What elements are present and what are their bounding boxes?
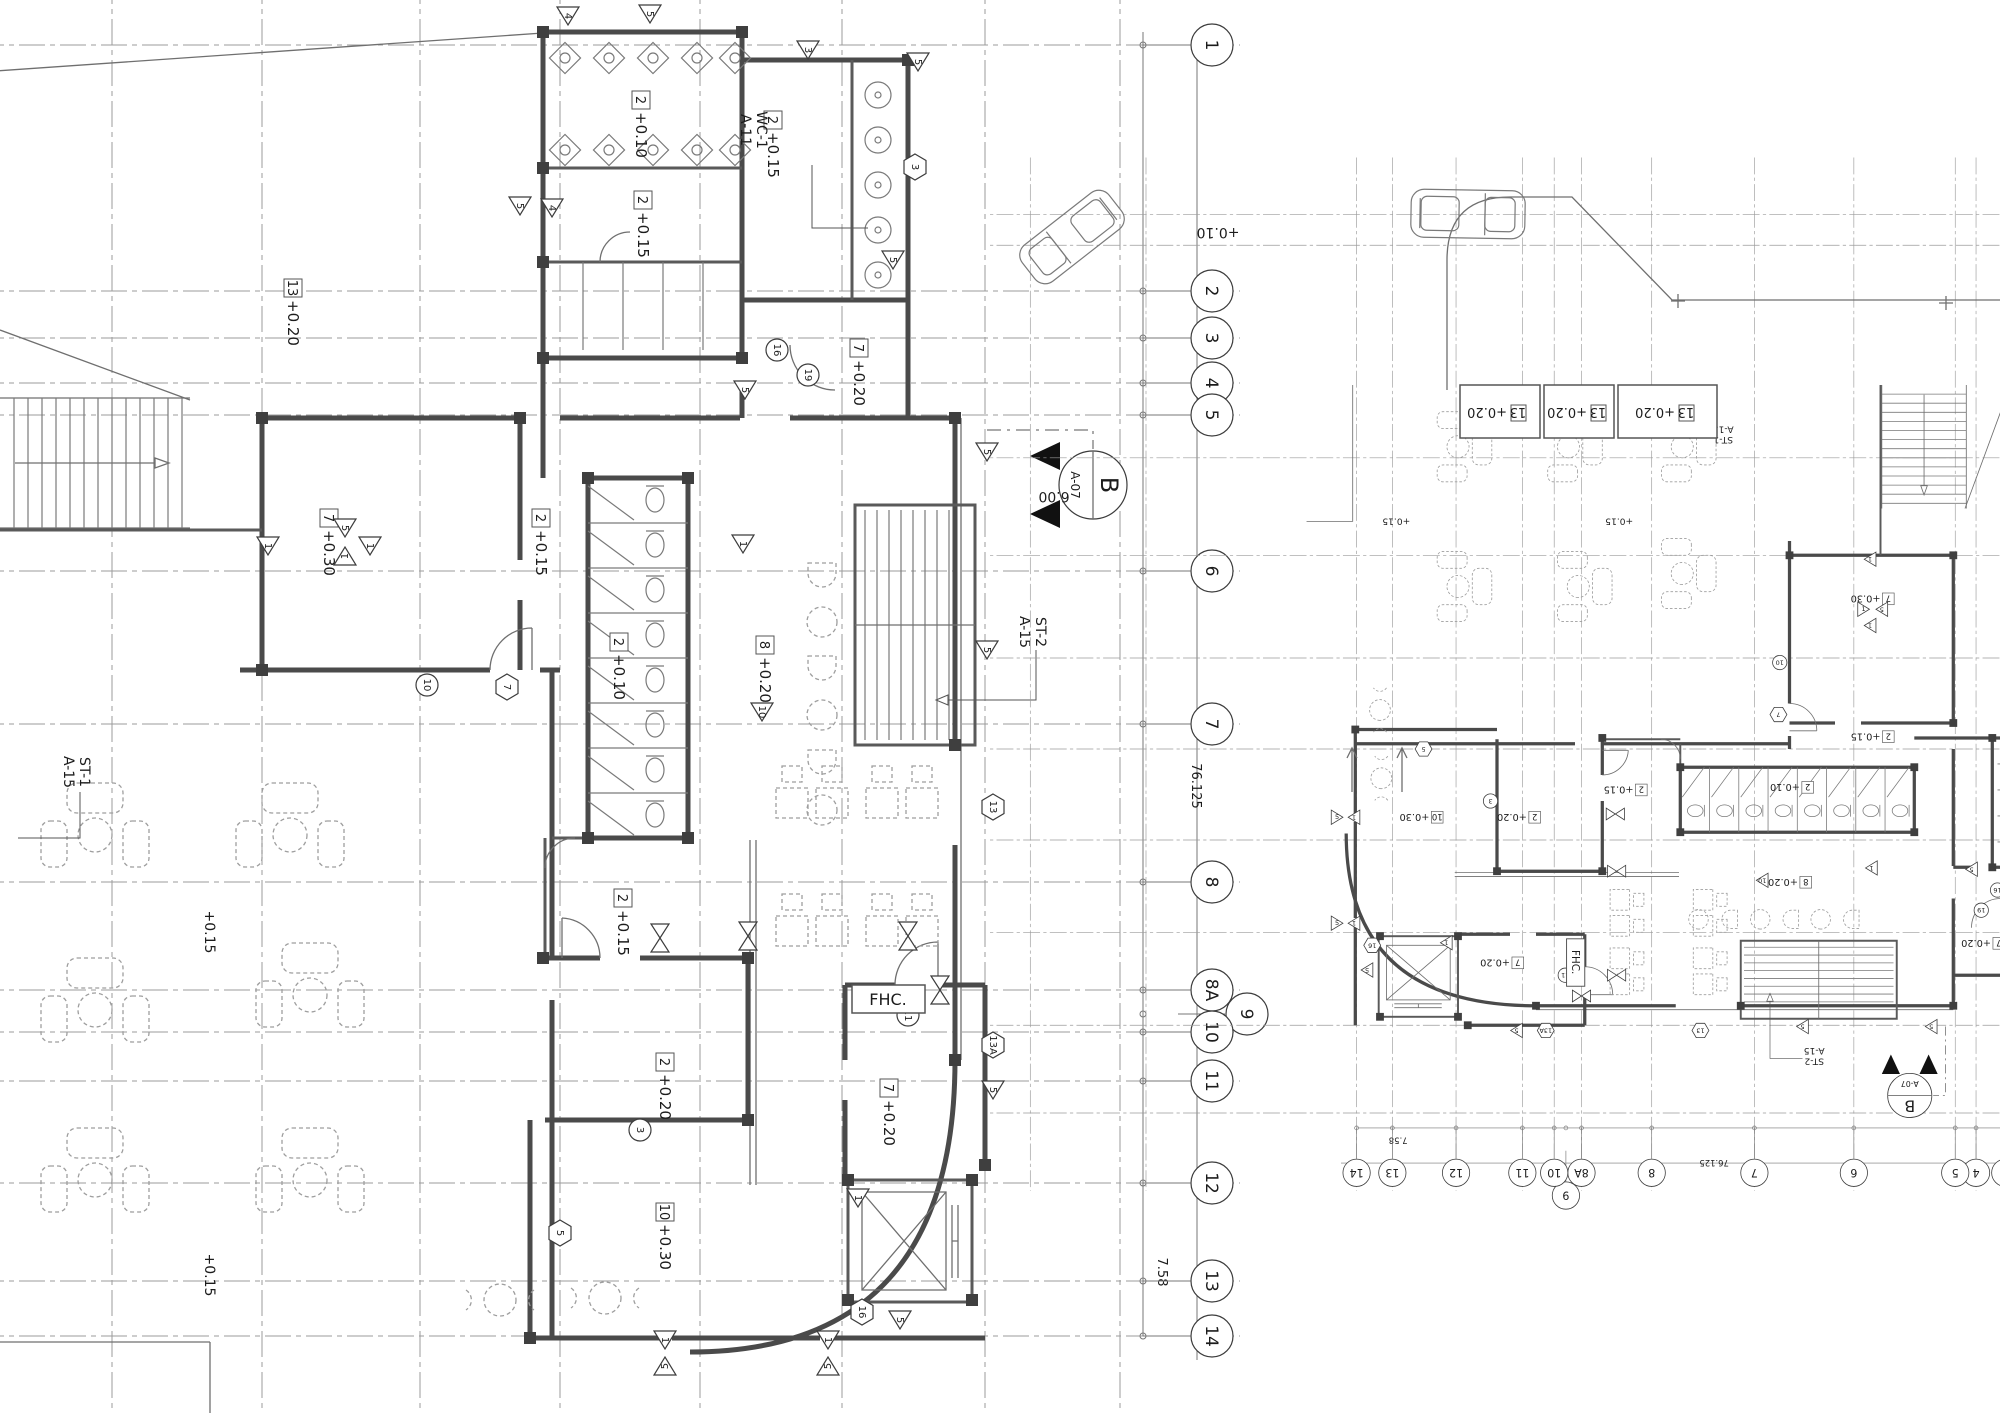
svg-text:11: 11 bbox=[1201, 1070, 1221, 1092]
right-box-num: 13 bbox=[1678, 404, 1695, 419]
dim-758: 7.58 bbox=[1154, 1258, 1169, 1287]
svg-text:13: 13 bbox=[987, 801, 998, 814]
svg-text:9: 9 bbox=[1236, 1009, 1256, 1020]
svg-text:10: 10 bbox=[421, 679, 432, 692]
svg-text:5: 5 bbox=[660, 1363, 671, 1369]
svg-text:7: 7 bbox=[320, 514, 335, 522]
level-label-a: +0.15 bbox=[201, 911, 217, 954]
svg-text:+0.20: +0.20 bbox=[756, 657, 774, 703]
svg-text:8: 8 bbox=[756, 641, 771, 649]
svg-text:+0.20: +0.20 bbox=[1467, 404, 1507, 419]
svg-text:7: 7 bbox=[501, 684, 512, 690]
right-dim-left: 6.00 bbox=[1038, 488, 1069, 504]
svg-text:+0.15: +0.15 bbox=[532, 530, 550, 576]
svg-text:3: 3 bbox=[1201, 333, 1221, 344]
svg-text:8A: 8A bbox=[1201, 979, 1221, 1002]
svg-text:+0.20: +0.20 bbox=[656, 1074, 674, 1120]
svg-text:5: 5 bbox=[894, 1317, 905, 1323]
svg-text:19: 19 bbox=[802, 369, 813, 382]
floor-plan-sheet-svg: 76.125 7.58 1 2 3 bbox=[0, 0, 2000, 1413]
svg-text:8: 8 bbox=[1201, 877, 1221, 888]
svg-text:+0.30: +0.30 bbox=[656, 1224, 674, 1270]
svg-text:+0.20: +0.20 bbox=[1635, 404, 1675, 419]
svg-text:1: 1 bbox=[1201, 40, 1221, 51]
svg-text:+0.15: +0.15 bbox=[614, 910, 632, 956]
svg-text:6: 6 bbox=[1201, 566, 1221, 577]
svg-text:A-15: A-15 bbox=[60, 756, 76, 788]
svg-text:2: 2 bbox=[632, 96, 647, 104]
svg-text:5: 5 bbox=[514, 203, 525, 209]
svg-text:3: 3 bbox=[634, 1127, 645, 1133]
svg-text:2: 2 bbox=[610, 638, 625, 646]
svg-text:+0.20: +0.20 bbox=[850, 360, 868, 406]
svg-text:2: 2 bbox=[532, 514, 547, 522]
svg-text:3: 3 bbox=[909, 164, 920, 170]
svg-text:13: 13 bbox=[1201, 1270, 1221, 1292]
svg-text:+0.20: +0.20 bbox=[1547, 404, 1587, 419]
svg-text:1: 1 bbox=[262, 543, 273, 549]
svg-text:5: 5 bbox=[887, 257, 898, 263]
svg-text:5: 5 bbox=[1201, 410, 1221, 421]
overall-dimension: 76.125 bbox=[1188, 763, 1203, 809]
svg-text:5: 5 bbox=[912, 59, 923, 65]
right-surface-level: +0.10 bbox=[1197, 224, 1240, 240]
svg-text:1: 1 bbox=[340, 553, 351, 559]
svg-text:2: 2 bbox=[656, 1058, 671, 1066]
sheet-background bbox=[0, 0, 2000, 1413]
svg-text:5: 5 bbox=[339, 525, 350, 531]
svg-text:16: 16 bbox=[771, 344, 782, 357]
svg-text:A-11: A-11 bbox=[737, 114, 753, 146]
svg-text:5: 5 bbox=[554, 1230, 565, 1236]
svg-text:4: 4 bbox=[562, 13, 573, 19]
svg-text:5: 5 bbox=[739, 387, 750, 393]
svg-text:5: 5 bbox=[981, 449, 992, 455]
svg-text:3: 3 bbox=[802, 47, 813, 53]
wc1-label: WC-1 bbox=[753, 111, 769, 149]
svg-text:16: 16 bbox=[856, 1306, 867, 1319]
svg-text:5: 5 bbox=[981, 647, 992, 653]
svg-text:+0.10: +0.10 bbox=[610, 654, 628, 700]
svg-text:+0.20: +0.20 bbox=[880, 1100, 898, 1146]
svg-text:+0.15: +0.15 bbox=[634, 212, 652, 258]
svg-text:13: 13 bbox=[284, 280, 299, 297]
svg-text:1: 1 bbox=[737, 541, 748, 547]
svg-text:1: 1 bbox=[659, 1337, 670, 1343]
st1-label: ST-1 bbox=[76, 757, 92, 787]
st2-label: ST-2 bbox=[1032, 617, 1048, 647]
svg-text:4: 4 bbox=[546, 205, 557, 211]
fhc-label: FHC. bbox=[869, 990, 907, 1009]
svg-text:10: 10 bbox=[656, 1204, 671, 1221]
svg-text:5: 5 bbox=[823, 1363, 834, 1369]
svg-text:A-15: A-15 bbox=[1016, 616, 1032, 648]
svg-text:+0.10: +0.10 bbox=[632, 112, 650, 158]
svg-text:12: 12 bbox=[1201, 1172, 1221, 1194]
level-label-b: +0.15 bbox=[201, 1254, 217, 1297]
svg-text:1: 1 bbox=[364, 543, 375, 549]
svg-text:10: 10 bbox=[1201, 1021, 1221, 1043]
svg-text:14: 14 bbox=[1201, 1325, 1221, 1347]
svg-text:2: 2 bbox=[634, 196, 649, 204]
svg-text:7: 7 bbox=[1201, 719, 1221, 730]
svg-text:7: 7 bbox=[850, 344, 865, 352]
svg-text:7: 7 bbox=[880, 1084, 895, 1092]
svg-text:5: 5 bbox=[644, 11, 655, 17]
svg-text:4: 4 bbox=[1201, 378, 1221, 389]
svg-text:1: 1 bbox=[822, 1337, 833, 1343]
svg-text:1: 1 bbox=[852, 1195, 863, 1201]
svg-text:+0.30: +0.30 bbox=[320, 530, 338, 576]
svg-text:2: 2 bbox=[614, 894, 629, 902]
svg-text:10: 10 bbox=[756, 706, 767, 719]
right-box-num: 13 bbox=[1510, 404, 1527, 419]
svg-text:+0.20: +0.20 bbox=[284, 300, 302, 346]
svg-text:2: 2 bbox=[1201, 286, 1221, 297]
right-box-num: 13 bbox=[1590, 404, 1607, 419]
drawing-sheet: 76.125 7.58 1 2 3 bbox=[0, 0, 2000, 1413]
section-letter: B bbox=[1095, 477, 1123, 493]
svg-text:13A: 13A bbox=[987, 1035, 998, 1055]
svg-text:5: 5 bbox=[987, 1087, 998, 1093]
